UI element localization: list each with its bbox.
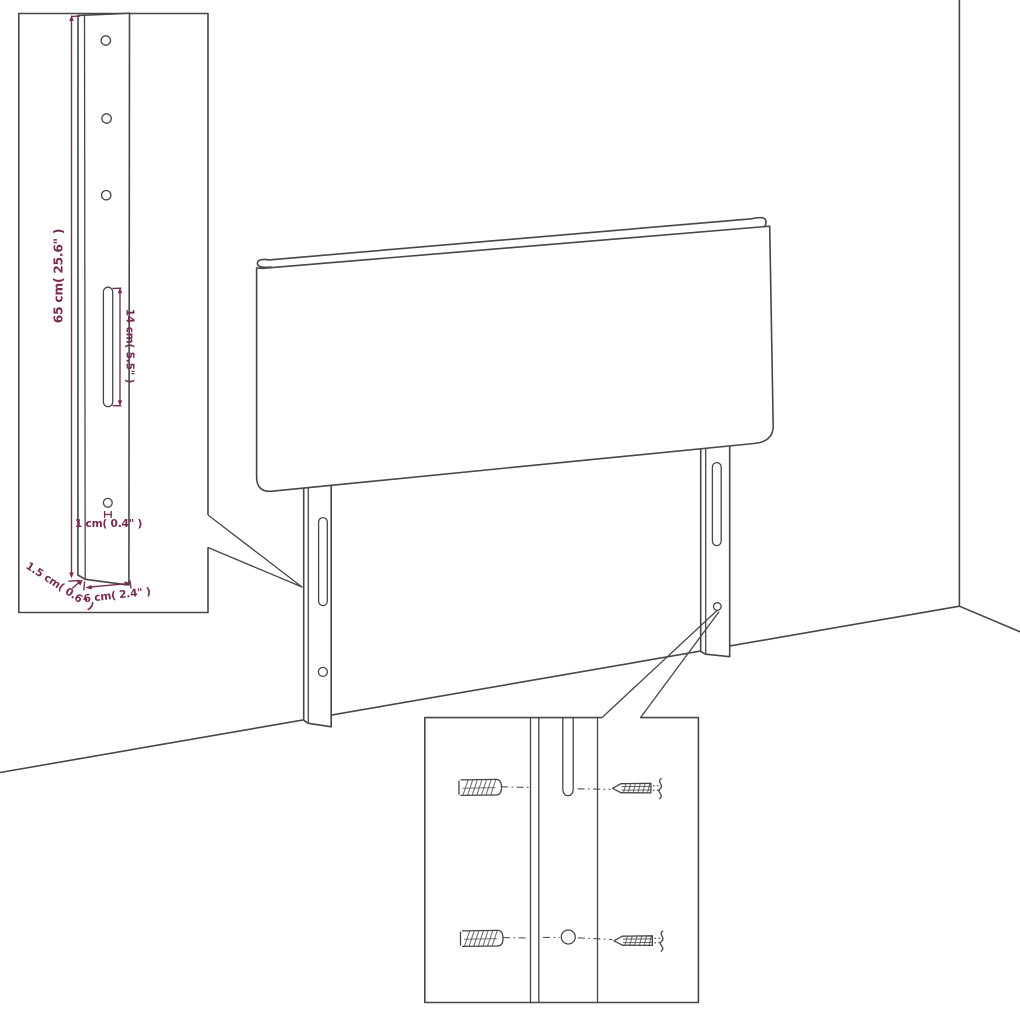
left-inset-callout (208, 515, 302, 587)
right-detail-inset (425, 718, 699, 1003)
inset-leg-edge-line (85, 15, 86, 579)
hole-size-label: 1 cm( 0.4" ) (75, 518, 142, 530)
diagram-canvas: 65 cm( 25.6" ) 14 cm( 5.5" ) 1 cm( 0.4" … (0, 0, 1020, 1020)
leg-height-label: 65 cm( 25.6" ) (52, 229, 66, 323)
inset-box (425, 718, 699, 1003)
floor-line-right (959, 606, 1020, 632)
callout-line (602, 611, 717, 718)
slot-length-label: 14 cm( 5.5" ) (124, 309, 136, 384)
callout-line (641, 612, 719, 718)
callout-line (208, 548, 302, 588)
headboard-panel (257, 218, 774, 492)
panel-front-face (257, 226, 774, 491)
callout-line (208, 515, 302, 587)
headboard-dimension-diagram: 65 cm( 25.6" ) 14 cm( 5.5" ) 1 cm( 0.4" … (0, 0, 1020, 1020)
left-detail-inset: 65 cm( 25.6" ) 14 cm( 5.5" ) 1 cm( 0.4" … (19, 13, 208, 613)
leg-details (318, 463, 721, 677)
